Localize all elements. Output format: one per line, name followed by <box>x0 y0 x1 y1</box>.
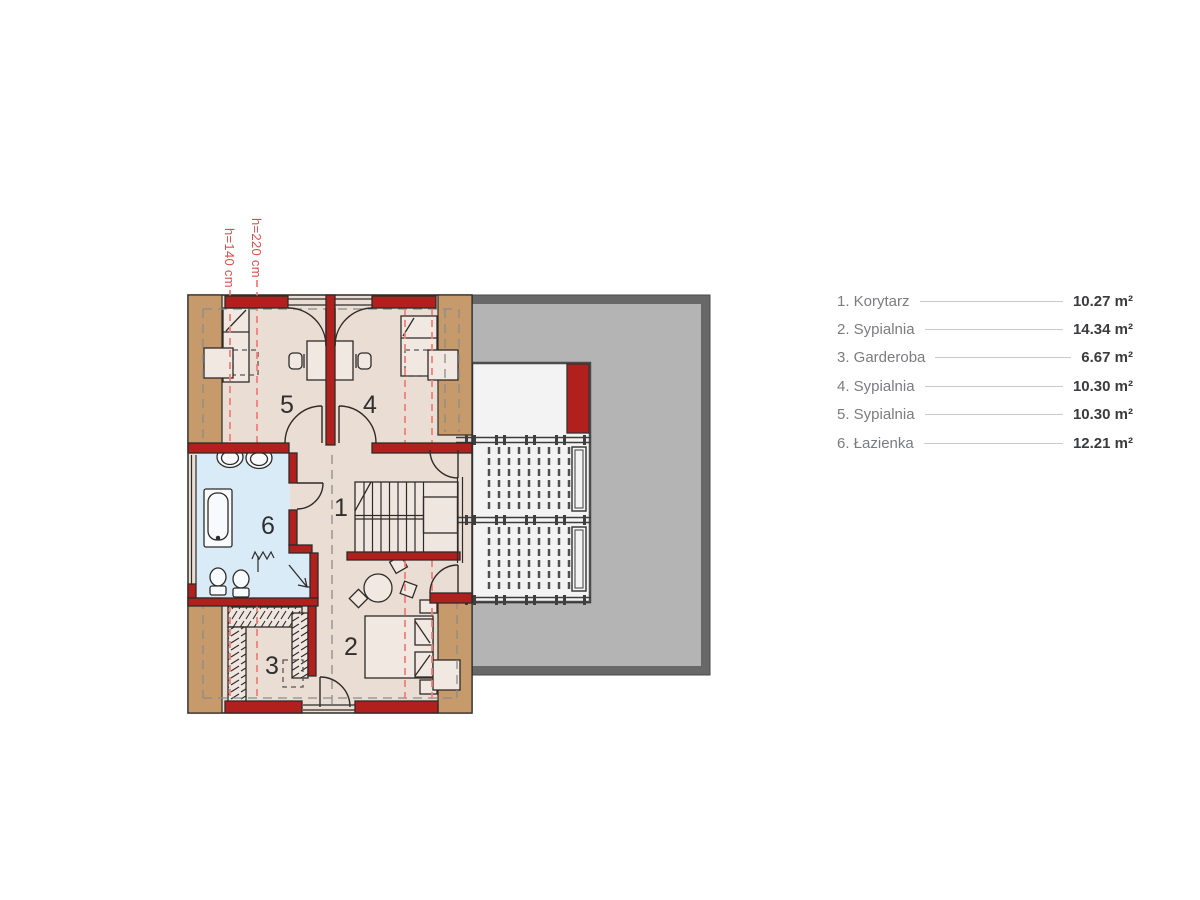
chair <box>289 353 304 369</box>
room-number-1: 1 <box>334 494 348 522</box>
height-annotation-140: h=140 cm <box>222 228 237 288</box>
legend-row: 6. Łazienka 12.21 m² <box>837 429 1133 457</box>
legend-connector <box>924 443 1063 444</box>
room-legend: 1. Korytarz 10.27 m² 2. Sypialnia 14.34 … <box>837 287 1133 457</box>
stairs <box>355 482 458 553</box>
dresser <box>433 660 460 690</box>
legend-connector <box>935 357 1071 358</box>
bidet <box>233 570 249 597</box>
legend-label: 2. Sypialnia <box>837 321 915 338</box>
legend-value: 10.30 m² <box>1073 378 1133 395</box>
legend-label: 3. Garderoba <box>837 349 925 366</box>
legend-label: 4. Sypialnia <box>837 378 915 395</box>
toilet <box>210 568 226 595</box>
room-number-2: 2 <box>344 633 358 661</box>
terrace-wall <box>567 364 589 433</box>
chair <box>356 353 371 369</box>
legend-connector <box>925 329 1063 330</box>
legend-row: 1. Korytarz 10.27 m² <box>837 287 1133 315</box>
double-bed <box>365 616 433 678</box>
room-number-6: 6 <box>261 512 275 540</box>
legend-value: 6.67 m² <box>1081 349 1133 366</box>
height-annotations: h=220 cm h=140 cm <box>222 218 264 288</box>
legend-label: 5. Sypialnia <box>837 406 915 423</box>
legend-row: 5. Sypialnia 10.30 m² <box>837 401 1133 429</box>
legend-row: 3. Garderoba 6.67 m² <box>837 344 1133 372</box>
legend-row: 4. Sypialnia 10.30 m² <box>837 372 1133 400</box>
room-number-5: 5 <box>280 391 294 419</box>
room-number-3: 3 <box>265 652 279 680</box>
legend-connector <box>925 414 1063 415</box>
legend-value: 12.21 m² <box>1073 435 1133 452</box>
legend-label: 6. Łazienka <box>837 435 914 452</box>
legend-label: 1. Korytarz <box>837 293 910 310</box>
legend-row: 2. Sypialnia 14.34 m² <box>837 315 1133 343</box>
legend-value: 10.27 m² <box>1073 293 1133 310</box>
room-number-4: 4 <box>363 391 377 419</box>
round-table <box>364 574 392 602</box>
legend-connector <box>920 301 1063 302</box>
legend-value: 14.34 m² <box>1073 321 1133 338</box>
desk <box>428 350 458 380</box>
roof-area <box>472 295 710 675</box>
desk <box>204 348 233 378</box>
legend-connector <box>925 386 1063 387</box>
page: 1 2 3 4 5 6 h=220 cm h=140 cm 1. Korytar… <box>0 0 1200 900</box>
height-annotation-220: h=220 cm <box>249 218 264 278</box>
legend-value: 10.30 m² <box>1073 406 1133 423</box>
